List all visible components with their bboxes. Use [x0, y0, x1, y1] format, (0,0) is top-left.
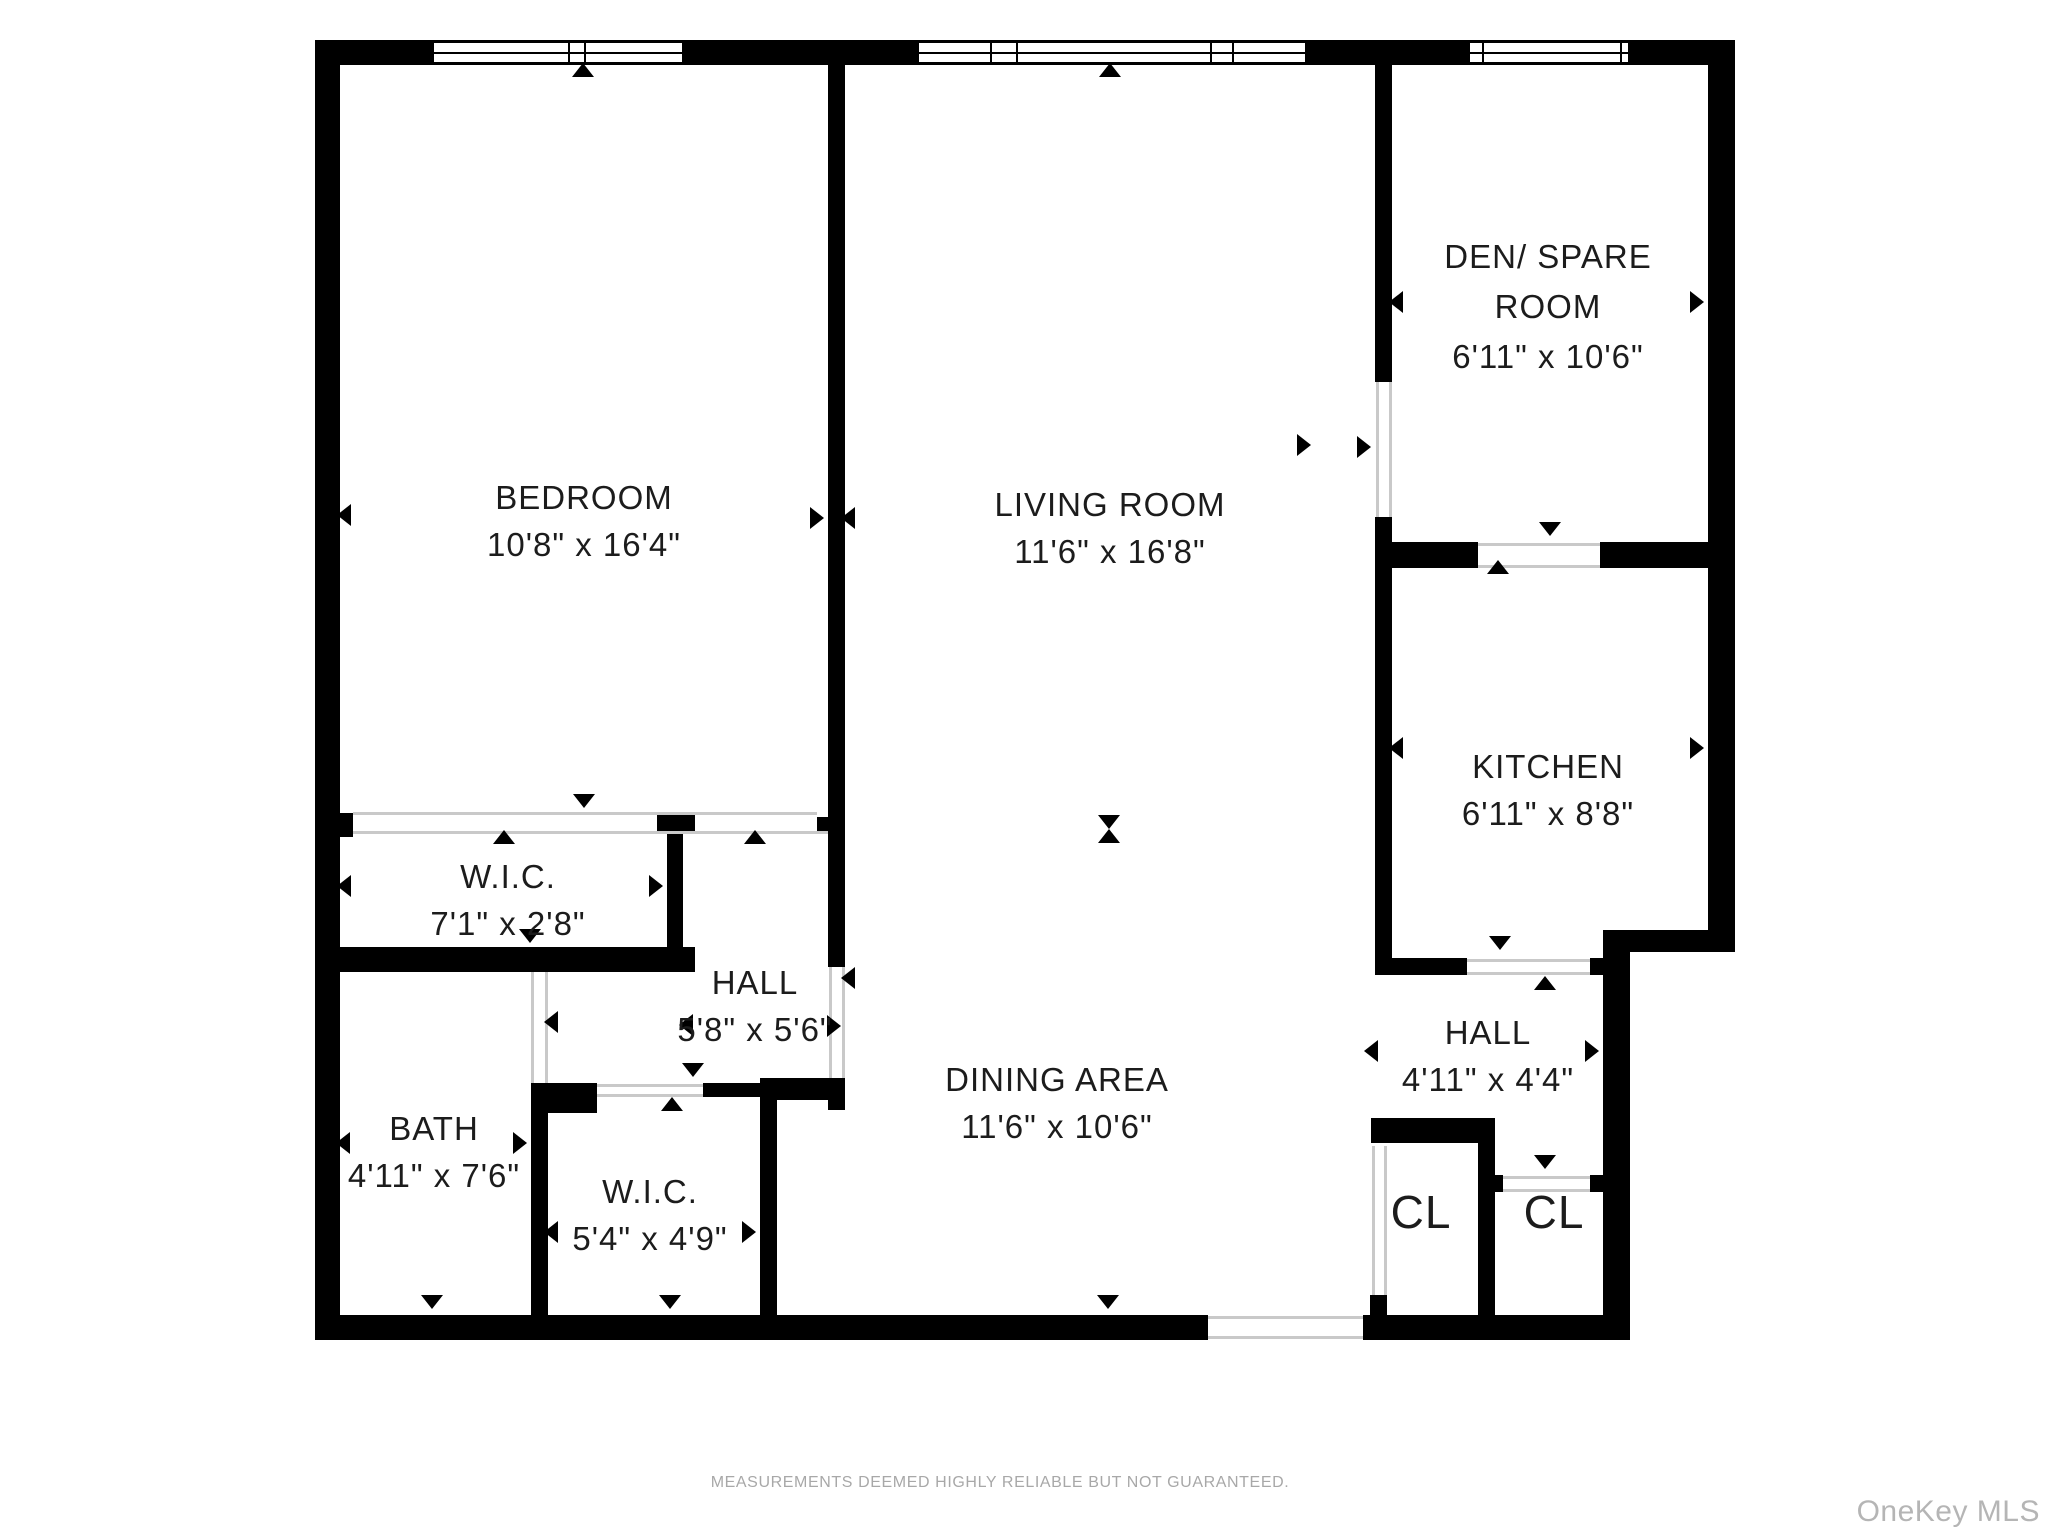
- wall-segment: [531, 1083, 597, 1113]
- door-opening-line: [1372, 1146, 1375, 1295]
- door-opening-line: [1503, 1176, 1590, 1179]
- measure-arrow-icon: [661, 1097, 683, 1111]
- room-name: KITCHEN: [1462, 743, 1634, 790]
- measure-arrow-icon: [742, 1221, 756, 1243]
- room-dims: 4'11" x 4'4": [1402, 1056, 1574, 1103]
- measure-arrow-icon: [744, 830, 766, 844]
- wall-segment: [1603, 930, 1735, 952]
- door-opening-line: [1384, 1146, 1387, 1295]
- measure-arrow-icon: [1690, 737, 1704, 759]
- room-dims: 6'11" x 8'8": [1462, 790, 1634, 837]
- room-label-closet-left: CL: [1391, 1185, 1452, 1239]
- wall-segment: [1603, 952, 1630, 1340]
- window-symbol: [1468, 41, 1630, 64]
- measure-arrow-icon: [1585, 1040, 1599, 1062]
- measure-arrow-icon: [573, 794, 595, 808]
- window-mullion: [1232, 43, 1234, 62]
- measure-arrow-icon: [1539, 522, 1561, 536]
- room-label-dining-area: DINING AREA 11'6" x 10'6": [945, 1056, 1169, 1150]
- window-symbol: [917, 41, 1307, 64]
- wall-segment: [340, 947, 695, 972]
- watermark-text: OneKey MLS: [1857, 1495, 2040, 1529]
- measure-arrow-icon: [1690, 291, 1704, 313]
- room-name: W.I.C.: [572, 1168, 727, 1215]
- measure-arrow-icon: [1487, 560, 1509, 574]
- window-mullion: [584, 43, 586, 62]
- room-name: BATH: [348, 1105, 520, 1152]
- wall-segment: [1590, 1175, 1603, 1192]
- wall-segment: [1478, 1143, 1495, 1317]
- measure-arrow-icon: [337, 875, 351, 897]
- door-opening-line: [353, 812, 817, 815]
- room-label-bedroom: BEDROOM 10'8" x 16'4": [487, 474, 681, 568]
- window-mullion: [568, 43, 570, 62]
- measure-arrow-icon: [1099, 63, 1121, 77]
- room-dims: 7'1" x 2'8": [430, 900, 585, 947]
- measure-arrow-icon: [421, 1295, 443, 1309]
- measure-arrow-icon: [1098, 829, 1120, 843]
- room-label-hall-2: HALL 4'11" x 4'4": [1402, 1009, 1574, 1103]
- measure-arrow-icon: [337, 504, 351, 526]
- measure-arrow-icon: [1489, 936, 1511, 950]
- room-label-hall-1: HALL 5'8" x 5'6": [677, 959, 832, 1053]
- wall-segment: [315, 1315, 1208, 1340]
- room-name: HALL: [1402, 1009, 1574, 1056]
- room-label-den-spare-room: DEN/ SPARE ROOM 6'11" x 10'6": [1444, 232, 1651, 382]
- measure-arrow-icon: [682, 1063, 704, 1077]
- wall-segment: [1375, 65, 1392, 382]
- wall-segment: [531, 1083, 548, 1315]
- door-opening-line: [1208, 1316, 1363, 1319]
- measure-arrow-icon: [1357, 436, 1371, 458]
- measure-arrow-icon: [810, 507, 824, 529]
- wall-segment: [1363, 1315, 1630, 1340]
- room-name: HALL: [677, 959, 832, 1006]
- measure-arrow-icon: [1389, 291, 1403, 313]
- window-center-line: [434, 52, 682, 54]
- window-mullion: [990, 43, 992, 62]
- wall-segment: [340, 813, 353, 837]
- measure-arrow-icon: [841, 507, 855, 529]
- measure-arrow-icon: [649, 875, 663, 897]
- room-label-closet-right: CL: [1524, 1185, 1585, 1239]
- room-dims: 5'4" x 4'9": [572, 1215, 727, 1262]
- room-name: DINING AREA: [945, 1056, 1169, 1103]
- door-opening-line: [531, 972, 534, 1083]
- wall-segment: [1371, 1118, 1495, 1143]
- measure-arrow-icon: [1364, 1040, 1378, 1062]
- door-opening-line: [597, 1094, 703, 1097]
- wall-segment: [1590, 958, 1603, 975]
- room-label-wic-2: W.I.C. 5'4" x 4'9": [572, 1168, 727, 1262]
- wall-segment: [760, 1083, 777, 1315]
- door-opening-line: [1467, 972, 1590, 975]
- window-symbol: [432, 41, 684, 64]
- room-name: BEDROOM: [487, 474, 681, 521]
- disclaimer-text: MEASUREMENTS DEEMED HIGHLY RELIABLE BUT …: [711, 1474, 1290, 1492]
- wall-segment: [1375, 542, 1478, 568]
- measure-arrow-icon: [1297, 434, 1311, 456]
- measure-arrow-icon: [1534, 1155, 1556, 1169]
- room-name: LIVING ROOM: [994, 481, 1225, 528]
- room-dims: 5'8" x 5'6": [677, 1006, 832, 1053]
- room-dims: 11'6" x 10'6": [945, 1103, 1169, 1150]
- window-mullion: [1482, 43, 1484, 62]
- measure-arrow-icon: [659, 1295, 681, 1309]
- window-center-line: [1470, 52, 1628, 54]
- room-label-wic-1: W.I.C. 7'1" x 2'8": [430, 853, 585, 947]
- wall-segment: [1375, 958, 1467, 975]
- window-center-line: [919, 52, 1305, 54]
- room-dims: 11'6" x 16'8": [994, 528, 1225, 575]
- room-dims: 10'8" x 16'4": [487, 521, 681, 568]
- measure-arrow-icon: [572, 63, 594, 77]
- window-mullion: [1210, 43, 1212, 62]
- measure-arrow-icon: [1534, 976, 1556, 990]
- room-name: ROOM: [1444, 282, 1651, 332]
- wall-segment: [1600, 542, 1710, 568]
- door-opening-line: [1376, 382, 1379, 517]
- door-opening-line: [1389, 382, 1392, 517]
- wall-segment: [1491, 1175, 1503, 1192]
- measure-arrow-icon: [841, 967, 855, 989]
- door-opening-line: [597, 1084, 703, 1087]
- measure-arrow-icon: [1098, 815, 1120, 829]
- wall-segment: [828, 1078, 845, 1110]
- floor-plan: BEDROOM 10'8" x 16'4" LIVING ROOM 11'6" …: [0, 0, 2048, 1536]
- room-dims: 4'11" x 7'6": [348, 1152, 520, 1199]
- room-name: DEN/ SPARE: [1444, 232, 1651, 282]
- room-label-kitchen: KITCHEN 6'11" x 8'8": [1462, 743, 1634, 837]
- window-mullion: [1016, 43, 1018, 62]
- room-dims: 6'11" x 10'6": [1444, 332, 1651, 382]
- measure-arrow-icon: [1389, 737, 1403, 759]
- room-label-bath: BATH 4'11" x 7'6": [348, 1105, 520, 1199]
- measure-arrow-icon: [544, 1221, 558, 1243]
- wall-segment: [1708, 40, 1735, 952]
- door-opening-line: [1208, 1336, 1363, 1339]
- wall-segment: [1370, 1295, 1387, 1317]
- window-mullion: [1620, 43, 1622, 62]
- room-label-living-room: LIVING ROOM 11'6" x 16'8": [994, 481, 1225, 575]
- door-opening-line: [1478, 543, 1600, 546]
- measure-arrow-icon: [493, 830, 515, 844]
- measure-arrow-icon: [544, 1011, 558, 1033]
- room-name: W.I.C.: [430, 853, 585, 900]
- measure-arrow-icon: [1097, 1295, 1119, 1309]
- door-opening-line: [1467, 959, 1590, 962]
